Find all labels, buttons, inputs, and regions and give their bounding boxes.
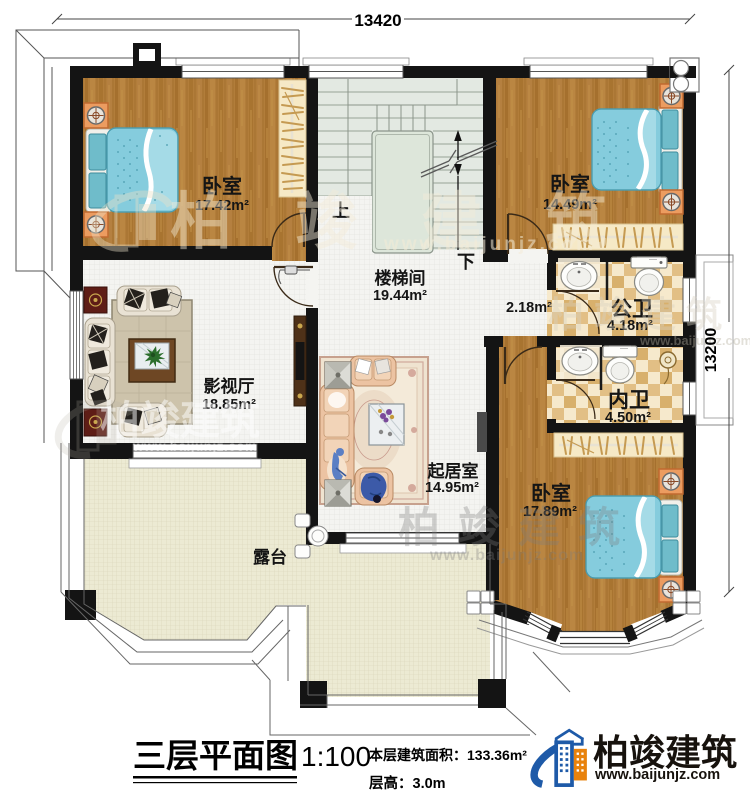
svg-text:www.baijunjz.com: www.baijunjz.com: [639, 333, 750, 348]
svg-text:露台: 露台: [253, 547, 287, 567]
svg-text:起居室: 起居室: [427, 461, 479, 481]
svg-text:柏竣建筑: 柏竣建筑: [100, 399, 260, 443]
svg-text:www.baijunjz.com: www.baijunjz.com: [594, 767, 720, 783]
svg-text:层高：3.0m: 层高：3.0m: [369, 774, 446, 792]
svg-text:柏竣建筑: 柏竣建筑: [398, 504, 638, 551]
svg-text:内卫: 内卫: [608, 388, 650, 412]
svg-text:影视厅: 影视厅: [204, 376, 255, 396]
svg-text:www.baijunjz.com: www.baijunjz.com: [429, 547, 584, 564]
svg-text:本层建筑面积：133.36m²: 本层建筑面积：133.36m²: [369, 747, 527, 763]
svg-text:卧室: 卧室: [531, 481, 571, 505]
svg-text:2.18m²: 2.18m²: [506, 300, 552, 316]
svg-text:14.95m²: 14.95m²: [425, 480, 479, 496]
svg-text:19.44m²: 19.44m²: [373, 288, 427, 304]
svg-text:www.baijunjz.com: www.baijunjz.com: [383, 234, 596, 255]
svg-text:13200: 13200: [703, 328, 720, 373]
svg-text:1:100: 1:100: [301, 741, 371, 772]
svg-text:4.50m²: 4.50m²: [605, 410, 651, 426]
svg-text:www.baijunjz.com: www.baijunjz.com: [132, 439, 258, 454]
svg-text:13420: 13420: [354, 11, 401, 30]
svg-text:三层平面图: 三层平面图: [133, 737, 298, 774]
svg-text:楼梯间: 楼梯间: [375, 268, 426, 288]
